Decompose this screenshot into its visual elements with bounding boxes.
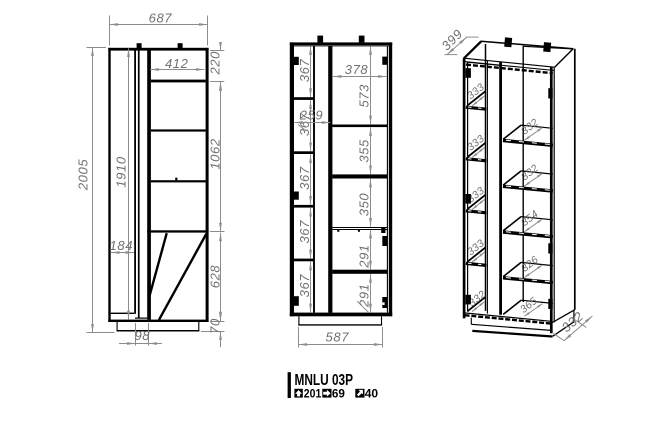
- svg-text:98: 98: [134, 328, 150, 343]
- svg-text:2005: 2005: [76, 159, 91, 191]
- svg-text:259: 259: [299, 108, 324, 123]
- svg-text:573: 573: [356, 84, 371, 108]
- svg-text:350: 350: [356, 193, 371, 217]
- svg-text:69: 69: [332, 386, 345, 400]
- svg-text:587: 587: [326, 329, 350, 344]
- svg-text:1062: 1062: [207, 138, 222, 169]
- svg-text:367: 367: [297, 166, 312, 190]
- svg-text:367: 367: [297, 220, 312, 244]
- svg-text:201: 201: [304, 386, 322, 400]
- svg-text:367: 367: [297, 274, 312, 298]
- svg-text:378: 378: [345, 62, 369, 77]
- svg-text:355: 355: [356, 139, 371, 163]
- svg-text:291: 291: [356, 244, 371, 269]
- svg-text:184: 184: [110, 238, 134, 253]
- svg-text:367: 367: [297, 58, 312, 82]
- svg-text:687: 687: [149, 11, 173, 26]
- svg-text:291: 291: [356, 283, 371, 308]
- svg-text:412: 412: [165, 56, 189, 71]
- svg-text:70: 70: [207, 318, 222, 334]
- svg-text:1910: 1910: [114, 156, 129, 187]
- svg-text:628: 628: [207, 265, 222, 289]
- svg-text:220: 220: [207, 51, 222, 76]
- svg-text:40: 40: [365, 386, 379, 400]
